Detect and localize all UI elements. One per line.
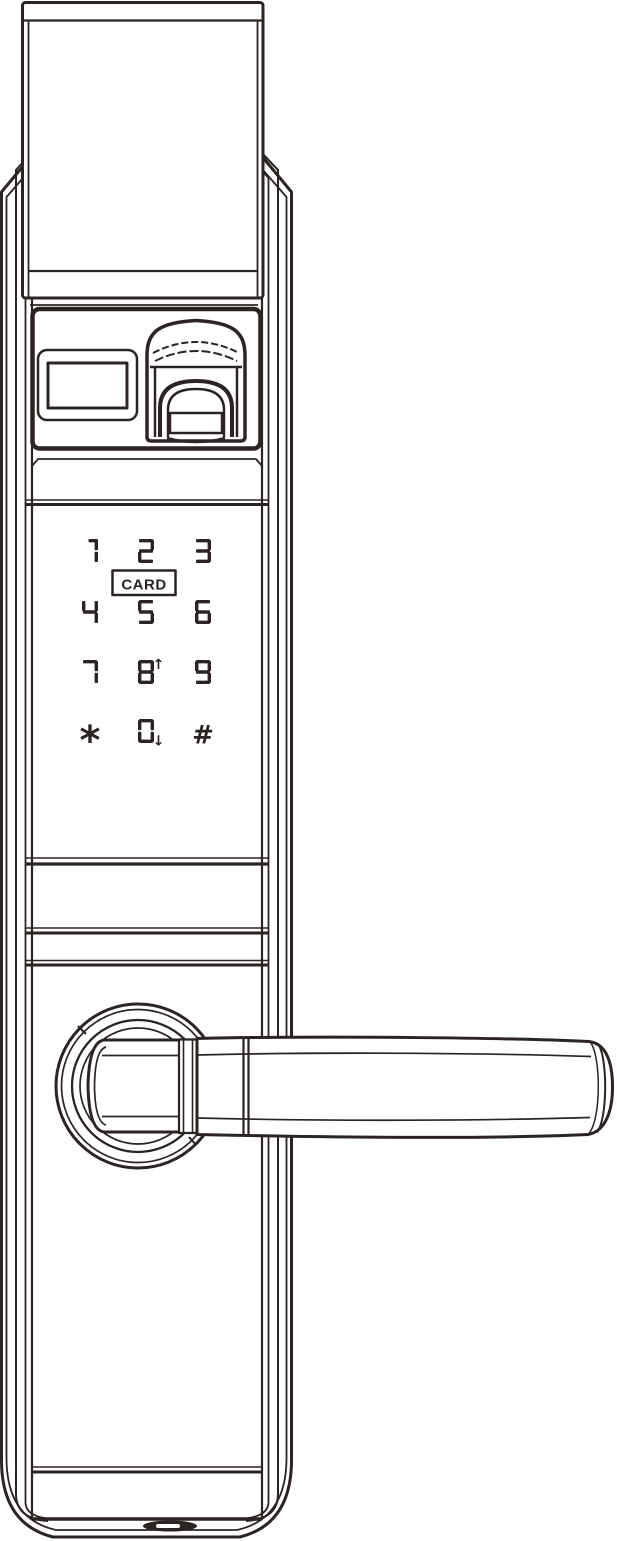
svg-text:#: # [192,721,214,751]
key-#: # [192,721,214,751]
handle-lever [88,1037,613,1137]
svg-text:*: * [80,718,101,764]
bottom-port [143,1521,197,1532]
door-handle [56,1004,613,1168]
key-*: * [80,718,101,764]
card-label: CARD [121,577,166,594]
svg-text:↓: ↓ [153,734,165,750]
top-cover [23,3,264,299]
card-area: CARD [113,571,176,596]
door-lock-illustration: ↑*↓# CARD [0,0,617,1541]
svg-text:↑: ↑ [153,657,165,673]
